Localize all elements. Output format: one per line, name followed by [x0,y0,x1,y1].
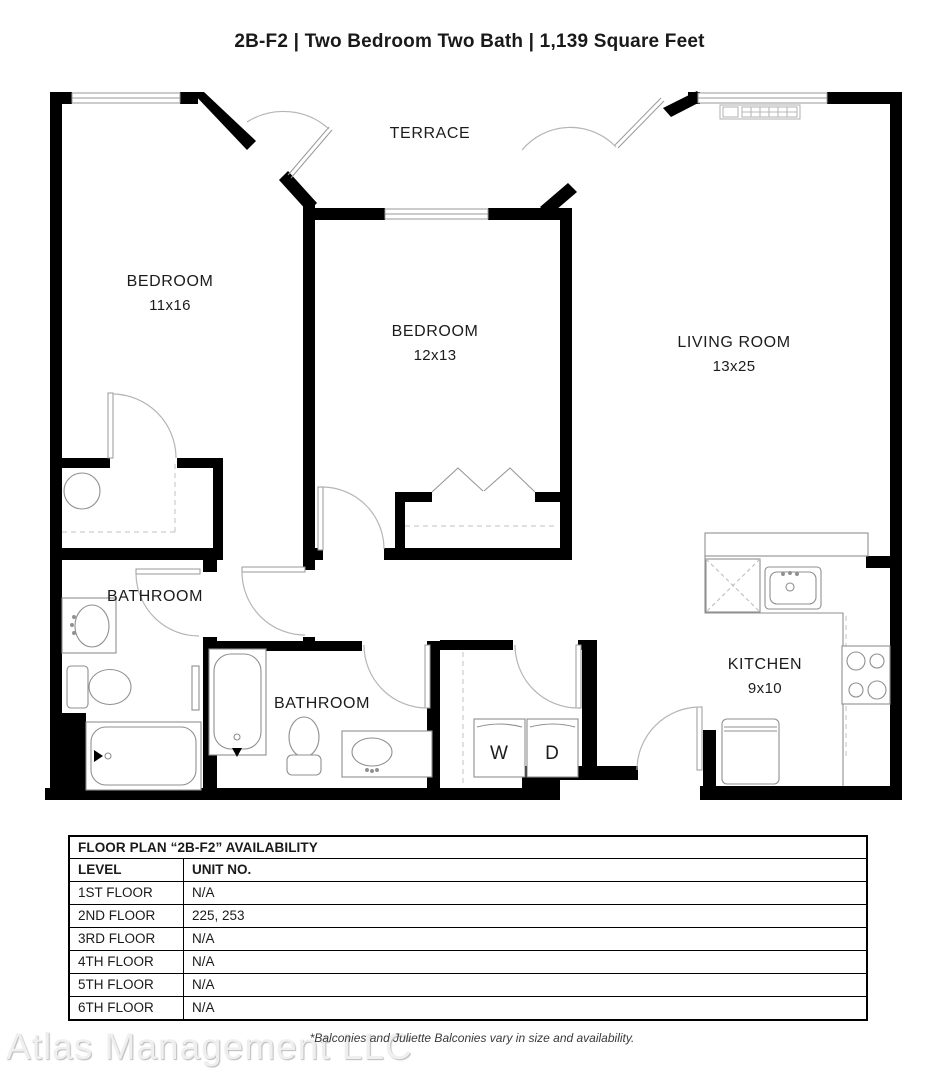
bathroom1-shelf [192,666,199,710]
door-bathroom-2 [364,645,430,708]
table-row: 3RD FLOOR N/A [70,927,866,950]
bathroom2-toilet [287,717,321,775]
door-laundry-closet [515,645,581,708]
room-label-bedroom-1: BEDROOM 11x16 [127,270,214,318]
floor-plan-page: 2B-F2 | Two Bedroom Two Bath | 1,139 Squ… [0,0,939,1080]
room-label-living-room: LIVING ROOM 13x25 [677,331,790,379]
table-row: 4TH FLOOR N/A [70,950,866,973]
availability-table-title: FLOOR PLAN “2B-F2” AVAILABILITY [70,837,866,858]
column-header-unit-no: UNIT NO. [184,859,866,881]
availability-table: FLOOR PLAN “2B-F2” AVAILABILITY LEVEL UN… [68,835,868,1021]
refrigerator [722,719,779,784]
windows [72,93,827,219]
washer-label: W [490,743,508,764]
dishwasher [706,559,760,612]
room-label-kitchen: KITCHEN 9x10 [728,653,802,701]
bathroom2-bathtub [209,649,266,757]
dryer-label: D [545,743,559,764]
column-header-level: LEVEL [70,859,184,881]
footnote: *Balconies and Juliette Balconies vary i… [310,1031,635,1045]
door-entry-kitchen [637,707,702,770]
room-label-terrace: TERRACE [390,122,471,146]
door-terrace-right [522,98,664,150]
availability-table-header: LEVEL UNIT NO. [70,858,866,881]
window-bench-unit [720,105,800,119]
table-row: 6TH FLOOR N/A [70,996,866,1019]
door-bedroom-2 [318,487,384,550]
room-label-bathroom-2: BATHROOM [274,692,370,716]
door-terrace-left [247,111,332,178]
bifold-closet-doors [432,468,535,492]
bathroom1-bathtub [86,722,201,790]
bathroom2-vanity-sink [342,731,432,777]
closet-fixture [64,473,100,509]
window-living-room [698,93,827,103]
table-row: 1ST FLOOR N/A [70,881,866,904]
window-bedroom-1 [72,93,180,103]
room-label-bathroom-1: BATHROOM [107,585,203,609]
door-closet-bedroom-1 [108,393,176,458]
bathroom1-toilet [67,666,131,708]
table-row: 2ND FLOOR 225, 253 [70,904,866,927]
kitchen-sink [765,567,821,609]
room-label-bedroom-2: BEDROOM 12x13 [392,320,479,368]
stove [842,646,890,704]
window-bedroom-2 [385,209,488,219]
door-hall-bedroom-1 [242,567,305,635]
table-row: 5TH FLOOR N/A [70,973,866,996]
